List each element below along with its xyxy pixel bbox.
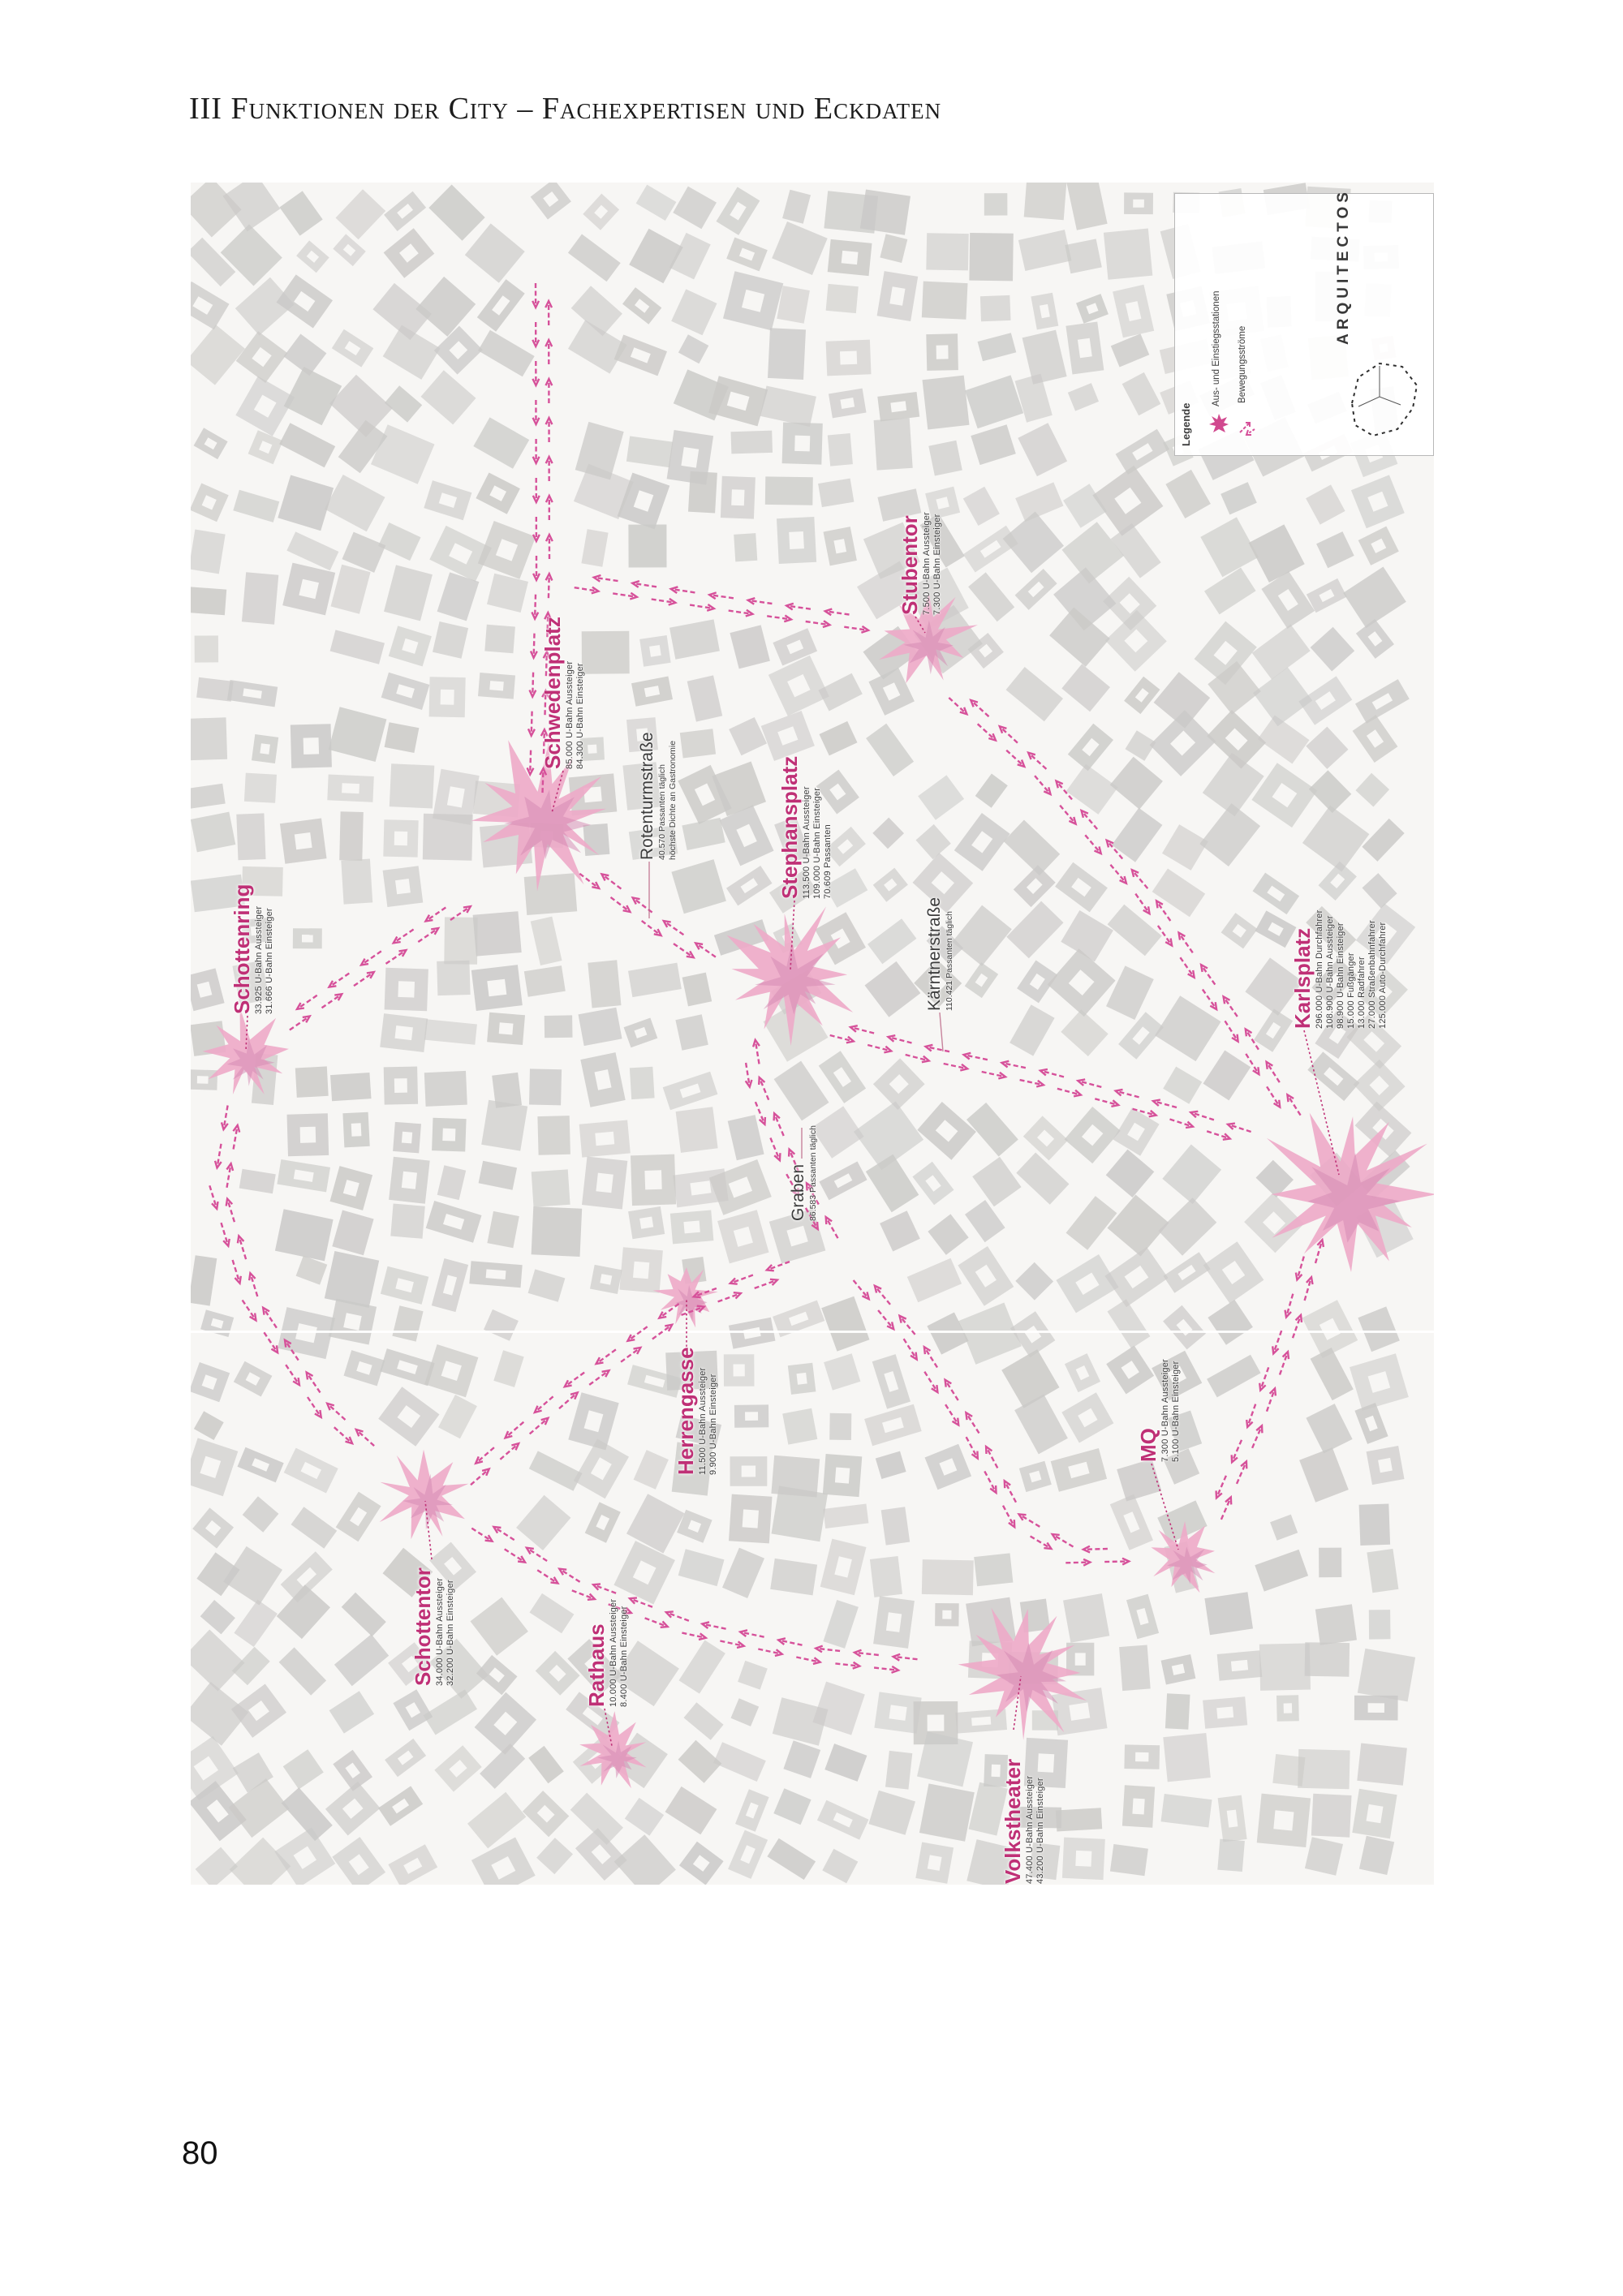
legend-box: Legende Aus- und Einstiegsstationen Bewe… bbox=[1174, 193, 1434, 456]
legend-title: Legende bbox=[1180, 403, 1192, 446]
legend-item-stations: Aus- und Einstiegsstationen bbox=[1212, 290, 1221, 406]
arquitectos-logo bbox=[1334, 356, 1425, 450]
document-page: III Funktionen der City – Fachexpertisen… bbox=[0, 0, 1623, 2296]
arquitectos-brand: ARQUITECTOS bbox=[1335, 188, 1353, 345]
legend-item-flows: Bewegungsströme bbox=[1238, 326, 1247, 403]
legend-flow-arrows-icon bbox=[1237, 415, 1258, 436]
legend-station-star-icon bbox=[1208, 413, 1229, 434]
page-number: 80 bbox=[182, 2135, 218, 2172]
